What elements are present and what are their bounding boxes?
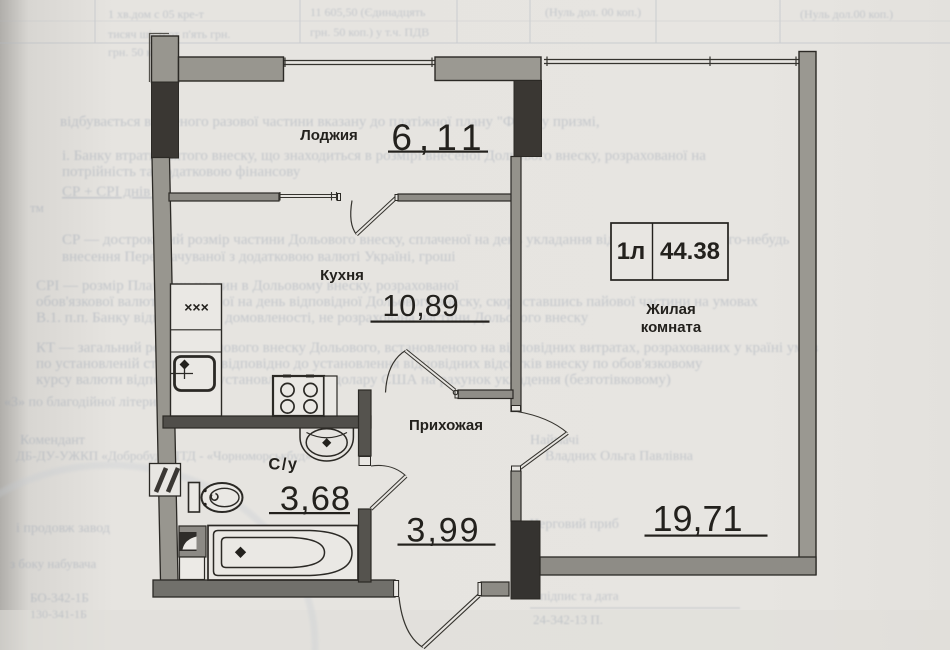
svg-text:1л: 1л (617, 238, 646, 265)
svg-text:11 605,50 (Єдинадцять: 11 605,50 (Єдинадцять (310, 5, 426, 19)
svg-text:внесення Передбачуваної з до: внесення Передбачуваної з додатковою вал… (62, 249, 456, 265)
svg-text:Прихожая: Прихожая (409, 417, 483, 434)
svg-text:підпис та дата: підпис та дата (540, 588, 619, 603)
svg-text:1 хв.дом с 05 кре-т: 1 хв.дом с 05 кре-т (108, 7, 205, 21)
svg-text:(Нуль дол.00 коп.): (Нуль дол.00 коп.) (800, 7, 893, 21)
svg-text:потрійність та додатковою фіна: потрійність та додатковою фінансову (62, 164, 301, 180)
svg-text:грн. 50 коп.) у т.ч. ПДВ: грн. 50 коп.) у т.ч. ПДВ (310, 25, 429, 39)
svg-text:24-342-13 П.: 24-342-13 П. (533, 612, 603, 627)
svg-text:10,89: 10,89 (382, 289, 458, 323)
svg-text:по установленій ставці НБУ, ві: по установленій ставці НБУ, відповідно д… (36, 356, 703, 372)
svg-text:БО-342-1Б: БО-342-1Б (30, 590, 89, 605)
svg-text:Владних Ольга Павлівна: Владних Ольга Павлівна (545, 449, 694, 464)
svg-text:В.1. п.п. Банку відповідно до: В.1. п.п. Банку відповідно до домовленос… (36, 310, 589, 326)
svg-text:з боку набувача: з боку набувача (10, 556, 96, 571)
svg-text:С/у: С/у (268, 456, 298, 474)
svg-text:Черговий приб: Черговий приб (530, 517, 619, 532)
svg-text:×××: ××× (184, 299, 209, 315)
svg-text:Лоджия: Лоджия (300, 127, 358, 144)
svg-text:Кухня: Кухня (320, 267, 364, 284)
svg-text:КТ — загальний розмір грошовог: КТ — загальний розмір грошового внеску Д… (36, 340, 818, 356)
svg-text:курсу валюти відповідно до уст: курсу валюти відповідно до установленого… (36, 372, 671, 388)
svg-text:44.38: 44.38 (660, 238, 720, 265)
svg-text:тм: тм (30, 200, 44, 215)
svg-text:(Нуль дол. 00 коп.): (Нуль дол. 00 коп.) (545, 5, 641, 19)
svg-text:комната: комната (641, 319, 702, 336)
svg-text:Комендант: Комендант (20, 433, 85, 448)
svg-text:19,71: 19,71 (652, 498, 742, 539)
svg-text:«З» по благодійної літери: «З» по благодійної літери (4, 395, 157, 410)
svg-text:Жилая: Жилая (645, 301, 695, 318)
svg-text:130-341-1Б: 130-341-1Б (30, 607, 87, 621)
svg-text:і продовж завод: і продовж завод (16, 521, 110, 536)
